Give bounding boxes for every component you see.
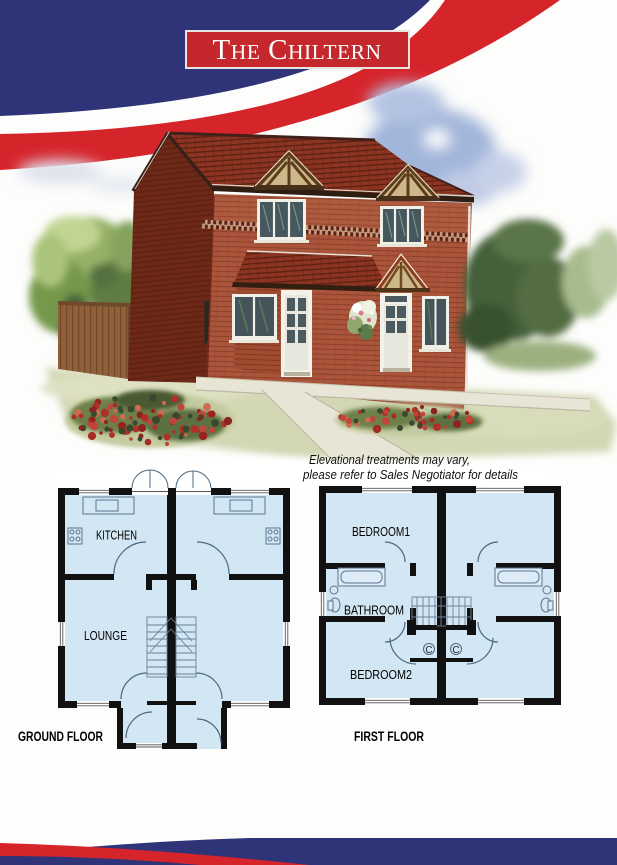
svg-text:KITCHEN: KITCHEN [96, 529, 137, 543]
svg-text:BEDROOM2: BEDROOM2 [350, 668, 412, 682]
svg-text:C: C [452, 645, 459, 656]
svg-text:Elevational treatments may var: Elevational treatments may vary, [309, 453, 470, 467]
svg-text:BEDROOM1: BEDROOM1 [352, 525, 410, 539]
svg-text:FIRST FLOOR: FIRST FLOOR [354, 729, 424, 744]
svg-text:BATHROOM: BATHROOM [344, 604, 404, 618]
svg-text:GROUND FLOOR: GROUND FLOOR [18, 729, 103, 744]
svg-text:C: C [425, 645, 432, 656]
svg-text:please refer to Sales Negotiat: please refer to Sales Negotiator for det… [302, 468, 518, 482]
svg-text:LOUNGE: LOUNGE [84, 629, 127, 643]
